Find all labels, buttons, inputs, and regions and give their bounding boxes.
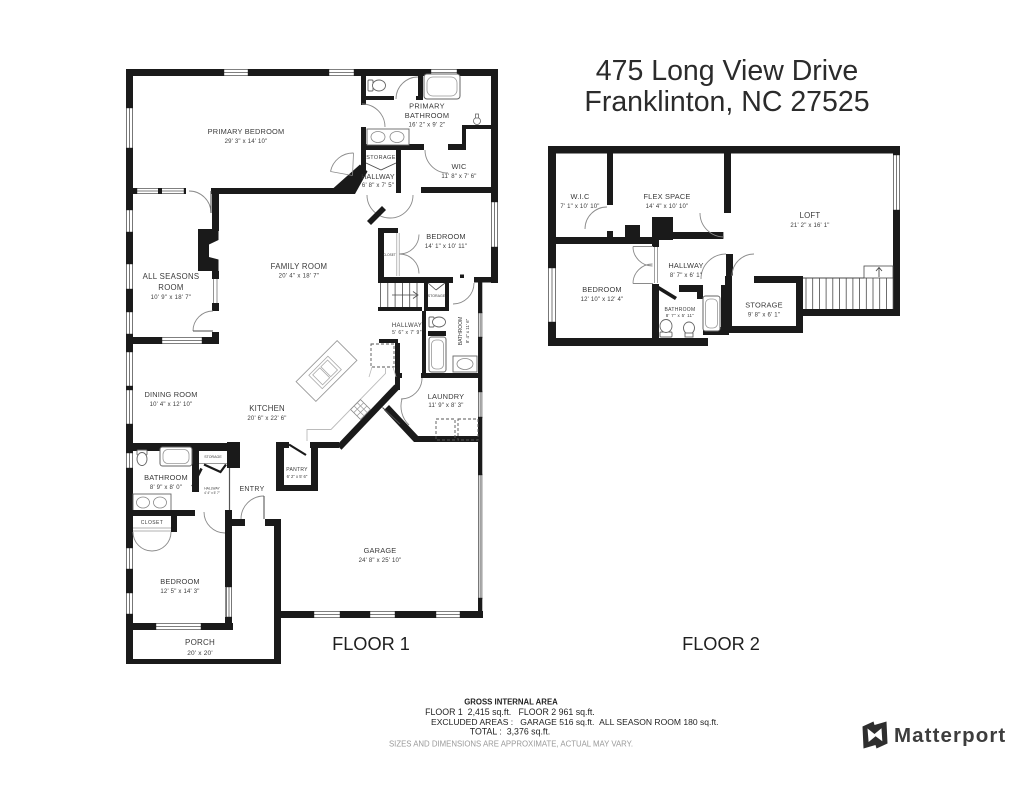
svg-text:ENTRY: ENTRY <box>239 486 264 493</box>
svg-text:6' 8" x 7' 5": 6' 8" x 7' 5" <box>362 183 394 189</box>
svg-text:12' 10" x 12' 4": 12' 10" x 12' 4" <box>581 297 624 303</box>
svg-text:ALL SEASONS: ALL SEASONS <box>143 272 200 281</box>
svg-text:FLEX SPACE: FLEX SPACE <box>643 192 690 201</box>
svg-text:FLOOR 1 2,415 sq.ft. FLOOR: FLOOR 1 2,415 sq.ft. FLOOR 2 961 sq.ft. <box>425 707 595 717</box>
svg-text:8' 4" x 11' 6": 8' 4" x 11' 6" <box>465 318 470 343</box>
svg-text:14' 1" x 10' 11": 14' 1" x 10' 11" <box>425 244 467 250</box>
svg-text:HALLWAY: HALLWAY <box>392 323 422 329</box>
svg-text:4' 4" x 5' 7": 4' 4" x 5' 7" <box>204 491 220 495</box>
svg-text:29' 3" x 14' 10": 29' 3" x 14' 10" <box>225 139 268 145</box>
svg-text:STORAGE: STORAGE <box>745 301 782 310</box>
svg-text:TOTAL : 3,376 sq.ft.: TOTAL : 3,376 sq.ft. <box>470 727 551 737</box>
svg-text:8' 7" x 5' 11": 8' 7" x 5' 11" <box>666 313 695 318</box>
svg-text:10' 4" x 12' 10": 10' 4" x 12' 10" <box>150 402 193 408</box>
svg-text:FAMILY ROOM: FAMILY ROOM <box>271 262 328 271</box>
svg-text:PANTRY: PANTRY <box>286 467 308 473</box>
svg-text:10' 9" x 18' 7": 10' 9" x 18' 7" <box>151 295 192 301</box>
svg-text:BEDROOM: BEDROOM <box>426 232 466 241</box>
svg-text:20' 4" x 18' 7": 20' 4" x 18' 7" <box>279 274 320 280</box>
svg-text:GROSS INTERNAL AREA: GROSS INTERNAL AREA <box>464 698 558 707</box>
svg-text:8' 9" x 8' 0": 8' 9" x 8' 0" <box>150 485 182 491</box>
svg-text:CLOSET: CLOSET <box>141 520 163 526</box>
svg-text:PRIMARY: PRIMARY <box>409 102 445 111</box>
svg-text:LAUNDRY: LAUNDRY <box>428 392 465 401</box>
svg-text:6' 2" x 5' 6": 6' 2" x 5' 6" <box>287 474 308 479</box>
svg-text:DINING ROOM: DINING ROOM <box>144 390 197 399</box>
svg-text:475 Long View Drive: 475 Long View Drive <box>596 55 858 87</box>
svg-text:STORAGE: STORAGE <box>204 455 222 459</box>
svg-text:BEDROOM: BEDROOM <box>160 577 200 586</box>
svg-text:BATHROOM: BATHROOM <box>405 111 450 120</box>
svg-text:FLOOR 1: FLOOR 1 <box>332 634 410 654</box>
svg-text:LOFT: LOFT <box>800 211 821 220</box>
svg-text:GARAGE: GARAGE <box>364 546 397 555</box>
svg-text:11' 9" x 8' 3": 11' 9" x 8' 3" <box>428 403 463 409</box>
svg-text:STORAGE: STORAGE <box>428 294 446 298</box>
svg-text:WIC: WIC <box>452 162 467 171</box>
svg-text:20' 6" x 22' 6": 20' 6" x 22' 6" <box>247 416 286 422</box>
svg-text:STORAGE: STORAGE <box>366 155 396 161</box>
svg-text:W.I.C: W.I.C <box>570 192 590 201</box>
svg-text:9' 8" x 6' 1": 9' 8" x 6' 1" <box>748 313 780 319</box>
svg-text:HALLWAY: HALLWAY <box>204 487 220 491</box>
svg-text:CLOSET: CLOSET <box>383 253 396 257</box>
svg-text:12' 5" x 14' 3": 12' 5" x 14' 3" <box>160 589 199 595</box>
svg-text:BEDROOM: BEDROOM <box>582 285 622 294</box>
svg-text:21' 2" x 16' 1": 21' 2" x 16' 1" <box>790 223 829 229</box>
svg-text:Matterport: Matterport <box>894 724 1006 747</box>
svg-text:14' 4" x 10' 10": 14' 4" x 10' 10" <box>646 204 689 210</box>
svg-text:FLOOR 2: FLOOR 2 <box>682 634 760 654</box>
svg-text:SIZES AND DIMENSIONS ARE APPRO: SIZES AND DIMENSIONS ARE APPROXIMATE, AC… <box>389 740 633 749</box>
svg-text:BATHROOM: BATHROOM <box>144 473 188 482</box>
svg-text:5' 6" x 7' 9": 5' 6" x 7' 9" <box>392 330 422 336</box>
svg-text:16' 2" x 9' 2": 16' 2" x 9' 2" <box>408 123 445 129</box>
svg-text:EXCLUDED AREAS : GARAGE 516: EXCLUDED AREAS : GARAGE 516 sq.ft. ALL S… <box>431 717 719 727</box>
svg-text:7' 1" x 10' 10": 7' 1" x 10' 10" <box>560 204 599 210</box>
svg-text:BATHROOM: BATHROOM <box>458 317 464 346</box>
svg-text:11' 8" x 7' 6": 11' 8" x 7' 6" <box>441 174 476 180</box>
svg-text:HALLWAY: HALLWAY <box>668 261 703 270</box>
svg-text:8' 7" x 6' 1": 8' 7" x 6' 1" <box>670 273 702 279</box>
svg-text:Franklinton, NC 27525: Franklinton, NC 27525 <box>584 86 869 118</box>
svg-text:PORCH: PORCH <box>185 638 215 647</box>
svg-text:20' x 20': 20' x 20' <box>187 650 213 657</box>
svg-text:PRIMARY BEDROOM: PRIMARY BEDROOM <box>208 127 285 136</box>
svg-text:HALLWAY: HALLWAY <box>361 174 395 181</box>
svg-text:24' 8" x 25' 10": 24' 8" x 25' 10" <box>359 558 402 564</box>
svg-text:KITCHEN: KITCHEN <box>249 404 285 413</box>
svg-text:ROOM: ROOM <box>158 283 183 292</box>
